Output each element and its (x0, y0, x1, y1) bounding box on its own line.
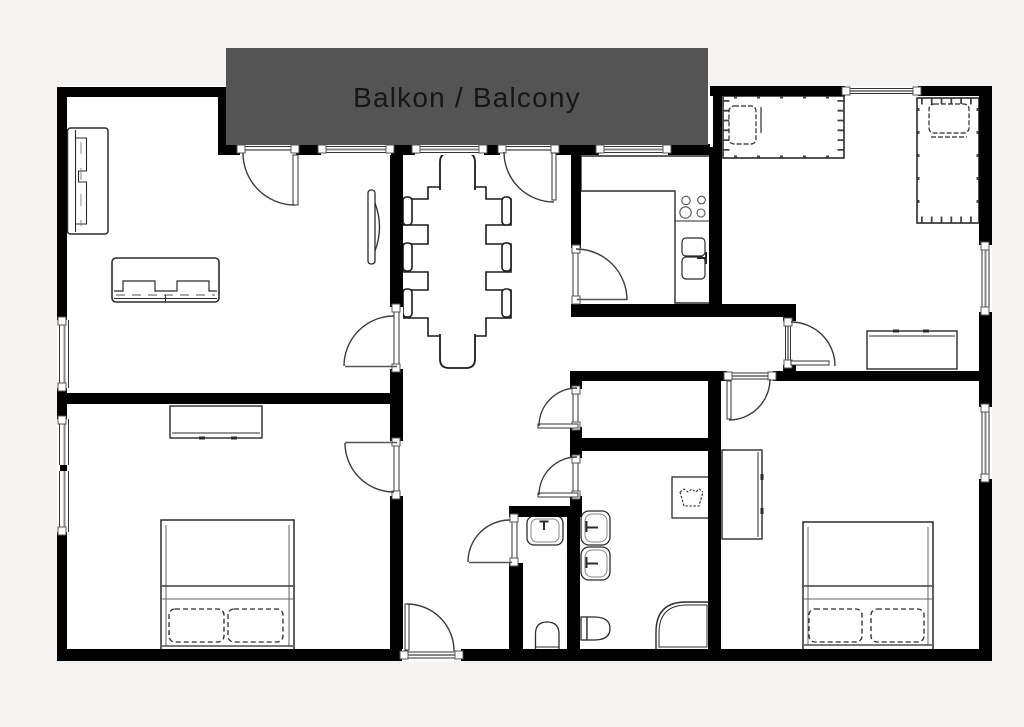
svg-text:Balkon / Balcony: Balkon / Balcony (353, 82, 581, 113)
